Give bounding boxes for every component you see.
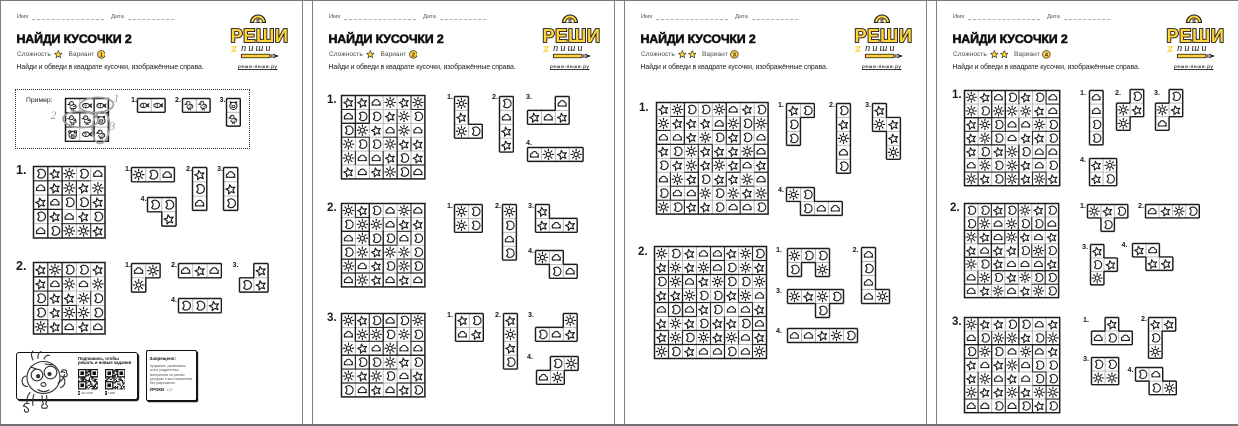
svg-text:1: 1: [99, 52, 102, 58]
svg-text:3: 3: [733, 52, 736, 58]
svg-text:2: 2: [411, 52, 414, 58]
